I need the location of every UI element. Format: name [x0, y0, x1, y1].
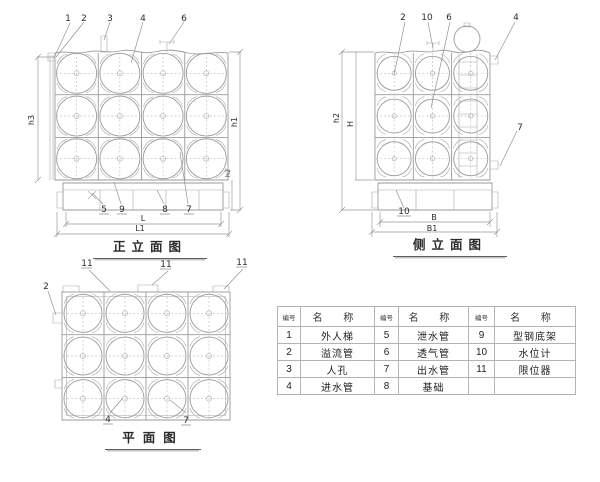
callout-label: 4 — [105, 415, 111, 425]
parts-table-row: 3 人孔 7 出水管 11 限位器 — [278, 361, 576, 378]
callout-label: 11 — [236, 258, 247, 268]
callout-label: 11 — [81, 259, 92, 269]
outlet-flange — [490, 161, 498, 169]
base-frame-side — [372, 183, 498, 210]
manhole-dome — [454, 26, 480, 52]
part-name: 水位计 — [495, 344, 576, 361]
callout-label: 11 — [160, 260, 171, 270]
part-no: 10 — [469, 344, 495, 361]
part-name: 外人梯 — [301, 327, 375, 344]
part-name: 人孔 — [301, 361, 375, 378]
part-no: 7 — [375, 361, 399, 378]
part-no: 2 — [278, 344, 301, 361]
col-header-name: 名 称 — [301, 307, 375, 327]
dim-label-H: H — [346, 121, 355, 127]
col-header-no: 编号 — [278, 307, 301, 327]
dim-label-L1: L1 — [135, 224, 145, 233]
part-name: 出水管 — [399, 361, 469, 378]
col-header-no: 编号 — [375, 307, 399, 327]
part-name: 进水管 — [301, 378, 375, 395]
parts-table-row: 4 进水管 8 基础 — [278, 378, 576, 395]
outer-ladder-front — [50, 55, 53, 180]
part-no: 11 — [469, 361, 495, 378]
plan-callouts: 11 11 11 2 4 7 — [43, 258, 248, 426]
side-view: h2 H B B1 2 10 6 4 7 10 — [332, 13, 523, 237]
front-view: h3 h1 h2 L L1 1 2 3 4 6 5 9 8 7 — [27, 14, 243, 237]
callout-label: 2 — [400, 13, 406, 23]
part-no: 9 — [469, 327, 495, 344]
engineering-drawing-sheet: h3 h1 h2 L L1 1 2 3 4 6 5 9 8 7 — [0, 0, 600, 482]
parts-table-row: 2 溢流管 6 透气管 10 水位计 — [278, 344, 576, 361]
col-header-name: 名 称 — [495, 307, 576, 327]
col-header-name: 名 称 — [399, 307, 469, 327]
part-no — [469, 378, 495, 395]
callout-label: 2 — [43, 282, 49, 292]
callout-label: 10 — [421, 13, 433, 23]
part-name: 泄水管 — [399, 327, 469, 344]
part-no: 4 — [278, 378, 301, 395]
side-tab-plan — [55, 380, 62, 388]
dim-label-h2-front: h2 — [224, 169, 232, 177]
part-name: 限位器 — [495, 361, 576, 378]
callout-label: 4 — [513, 13, 519, 23]
parts-table-row: 1 外人梯 5 泄水管 9 型钢底架 — [278, 327, 576, 344]
part-name — [495, 378, 576, 395]
front-callouts-top: 1 2 3 4 6 — [54, 14, 187, 63]
limit-stop-center — [138, 285, 158, 292]
part-no: 1 — [278, 327, 301, 344]
base-frame-front — [57, 183, 229, 210]
callout-label: 7 — [186, 205, 192, 215]
dim-label-h3: h3 — [27, 115, 36, 125]
callout-label: 5 — [101, 205, 107, 215]
limit-stop-left — [63, 286, 79, 292]
part-name: 型钢底架 — [495, 327, 576, 344]
parts-table: 编号 名 称 编号 名 称 编号 名 称 1 外人梯 5 泄水管 9 型钢底架 … — [277, 306, 576, 395]
overflow-flange-plan — [53, 313, 62, 323]
callout-label: 3 — [107, 14, 113, 24]
dim-label-h1: h1 — [230, 117, 239, 127]
callout-label: 7 — [183, 416, 189, 426]
part-no: 8 — [375, 378, 399, 395]
part-name: 透气管 — [399, 344, 469, 361]
plan-view-title: 平面图 — [105, 427, 201, 450]
part-no: 3 — [278, 361, 301, 378]
dim-label-h2: h2 — [332, 113, 341, 123]
callout-label: 4 — [140, 14, 146, 24]
parts-table-header-row: 编号 名 称 编号 名 称 编号 名 称 — [278, 307, 576, 327]
part-name: 基础 — [399, 378, 469, 395]
callout-label: 7 — [517, 123, 523, 133]
callout-label: 1 — [65, 14, 71, 24]
callout-label: 10 — [398, 207, 410, 217]
callout-label: 9 — [119, 205, 125, 215]
front-dimensions: h3 h1 h2 L L1 — [27, 49, 243, 237]
plan-view: 11 11 11 2 4 7 — [43, 258, 248, 426]
drawing-views: h3 h1 h2 L L1 1 2 3 4 6 5 9 8 7 — [0, 0, 600, 482]
side-view-title: 侧立面图 — [393, 234, 507, 257]
part-name: 溢流管 — [301, 344, 375, 361]
dim-label-B1: B1 — [427, 224, 438, 233]
front-view-title: 正立面图 — [93, 236, 207, 259]
callout-label: 6 — [446, 13, 452, 23]
dim-label-B: B — [431, 213, 437, 222]
callout-label: 6 — [181, 14, 187, 24]
callout-label: 2 — [81, 14, 87, 24]
dim-label-L: L — [141, 214, 146, 223]
part-no: 5 — [375, 327, 399, 344]
limit-stop-right — [213, 286, 229, 292]
col-header-no: 编号 — [469, 307, 495, 327]
callout-label: 8 — [162, 205, 168, 215]
part-no: 6 — [375, 344, 399, 361]
overflow-pipe-stub — [101, 36, 107, 52]
